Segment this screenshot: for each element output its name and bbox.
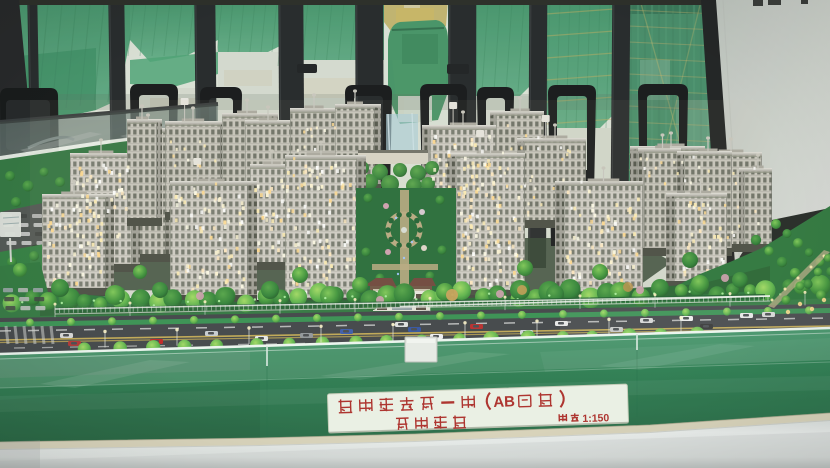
svg-text:AB: AB	[493, 393, 515, 411]
svg-text:1:150: 1:150	[582, 412, 609, 425]
